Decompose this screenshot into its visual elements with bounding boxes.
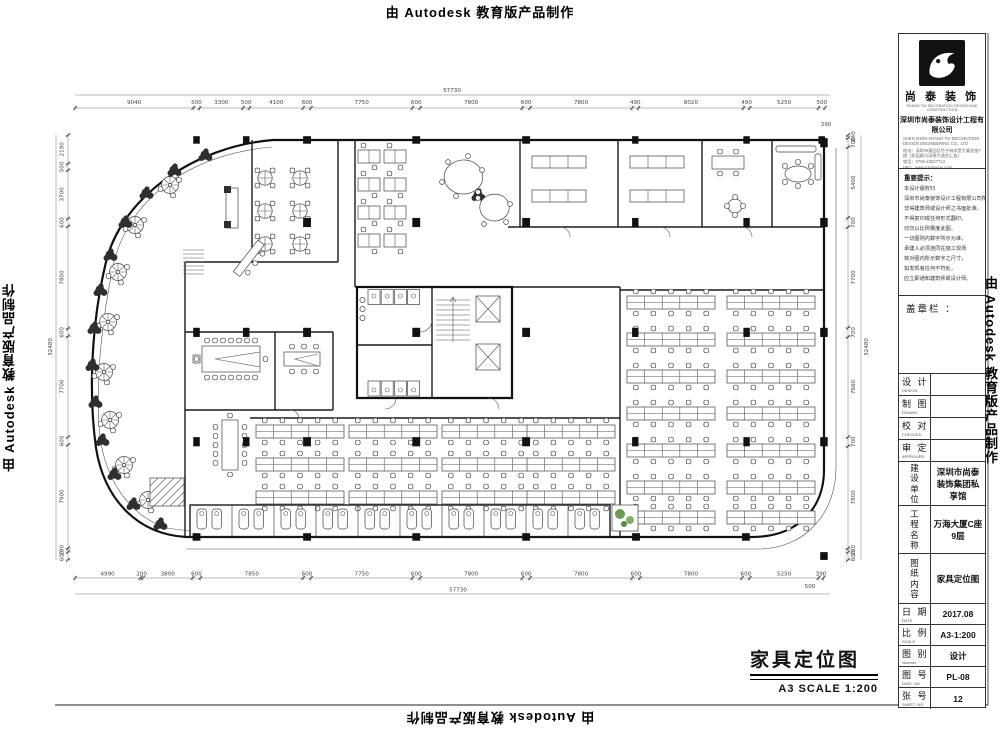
svg-text:600: 600 <box>411 100 422 106</box>
notice-section: 重要提示： 本设计版权归深圳市尚泰装饰设计工程有限公司所有，非得建筑师或设计师之… <box>899 169 985 296</box>
info-rows: 建设单位 深圳市尚泰装饰集团私享馆 工程名称 万海大厦C座9层 图纸内容 家具定… <box>899 462 985 604</box>
svg-text:7800: 7800 <box>60 270 66 285</box>
svg-text:4990: 4990 <box>101 572 116 578</box>
category-value: 设计 <box>931 646 985 666</box>
drawing-title: 家具定位图 <box>750 645 878 672</box>
info-row-project: 工程名称 万海大厦C座9层 <box>899 506 985 554</box>
company-phone: 电话：0755-23227713 <box>903 159 981 164</box>
svg-text:7900: 7900 <box>60 489 66 504</box>
svg-text:7700: 7700 <box>851 270 857 285</box>
notice-line: 一切图则内数字所示为准， <box>904 234 980 244</box>
svg-text:490: 490 <box>741 100 752 106</box>
svg-text:8020: 8020 <box>684 100 699 106</box>
workstations-bottom <box>256 418 615 511</box>
svg-text:390: 390 <box>816 572 827 578</box>
scale-value: A3-1:200 <box>931 625 985 645</box>
brand-name-en: SHANG TAI DECORATION DESIGN AND CONSTRUC… <box>899 104 985 112</box>
info-row-sheet-content: 图纸内容 家具定位图 <box>899 554 985 604</box>
svg-text:5400: 5400 <box>851 175 857 190</box>
svg-text:500: 500 <box>191 100 202 106</box>
svg-text:5250: 5250 <box>777 572 792 578</box>
svg-text:4100: 4100 <box>269 100 284 106</box>
svg-text:7750: 7750 <box>355 100 370 106</box>
drawing-scale-note: A3 SCALE 1:200 <box>750 683 878 695</box>
reception-area <box>183 186 269 280</box>
svg-text:600: 600 <box>302 572 313 578</box>
autodesk-banner-bottom: 由 Autodesk 教育版产品制作 <box>0 709 1000 728</box>
organic-tables <box>440 154 513 227</box>
svg-text:600: 600 <box>631 572 642 578</box>
sign-row-approved: 审 定APPROVER <box>899 440 985 462</box>
svg-text:600: 600 <box>191 572 202 578</box>
dwgno-value: PL-08 <box>931 667 985 687</box>
svg-text:7800: 7800 <box>851 490 857 505</box>
workstations-right <box>627 289 815 531</box>
client-value: 深圳市尚泰装饰集团私享馆 <box>931 462 985 505</box>
sign-row-drawn: 制 图DRAWN <box>899 396 985 418</box>
meta-row-category: 图 别Number 设计 <box>899 646 985 667</box>
company-address: 地址：深圳市福田区竹子林求是大厦北座7楼（彩田路与深南大道交汇处） <box>903 148 981 159</box>
sign-row-checked: 校 对CHECKED <box>899 418 985 440</box>
company-logo <box>919 40 965 86</box>
meta-row-dwgno: 图 号DWG. NO PL-08 <box>899 667 985 688</box>
content-value: 家具定位图 <box>931 554 985 603</box>
svg-text:7800: 7800 <box>464 100 479 106</box>
sign-rows: 设 计DESIGN 制 图DRAWN 校 对CHECKED 审 定APPROVE… <box>899 374 985 462</box>
svg-text:7750: 7750 <box>355 572 370 578</box>
sign-value <box>931 374 985 395</box>
top-right-offices <box>712 146 821 217</box>
svg-text:700: 700 <box>851 217 857 228</box>
svg-text:500: 500 <box>60 161 66 172</box>
svg-text:500: 500 <box>816 100 827 106</box>
svg-text:600: 600 <box>60 327 66 338</box>
svg-text:500: 500 <box>241 100 252 106</box>
svg-text:700: 700 <box>851 436 857 447</box>
svg-text:600: 600 <box>851 550 857 561</box>
title-underline <box>750 674 878 680</box>
sign-value <box>931 440 985 461</box>
core-toilets-stairs-elevators <box>290 227 752 419</box>
company-name: 深圳市尚泰装饰设计工程有限公司 <box>900 115 984 135</box>
svg-text:7800: 7800 <box>574 100 589 106</box>
stamp-section: 盖章栏 ： <box>899 296 985 374</box>
sign-value <box>931 418 985 439</box>
brand-section: 尚 泰 装 饰 SHANG TAI DECORATION DESIGN AND … <box>899 34 985 169</box>
round-table-room <box>255 168 310 254</box>
notice-line: 承建人必须连同在施工现场 <box>904 244 980 254</box>
svg-text:600: 600 <box>60 217 66 228</box>
svg-text:7660: 7660 <box>851 379 857 394</box>
drawing-title-block: 家具定位图 A3 SCALE 1:200 <box>750 645 878 695</box>
svg-text:600: 600 <box>60 550 66 561</box>
svg-text:7800: 7800 <box>574 572 589 578</box>
svg-text:700: 700 <box>851 327 857 338</box>
svg-text:2190: 2190 <box>60 142 66 157</box>
svg-text:3800: 3800 <box>161 572 176 578</box>
svg-text:7800: 7800 <box>684 572 699 578</box>
svg-text:7850: 7850 <box>245 572 260 578</box>
sign-row-design: 设 计DESIGN <box>899 374 985 396</box>
notice-line: 核对图内所示数字之尺寸， <box>904 254 980 264</box>
svg-text:5250: 5250 <box>777 100 792 106</box>
date-value: 2017.08 <box>931 604 985 624</box>
svg-text:7700: 7700 <box>60 379 66 394</box>
svg-text:32480: 32480 <box>864 338 870 356</box>
brand-name: 尚 泰 装 饰 <box>899 88 985 104</box>
meta-row-date: 日 期DATE 2017.08 <box>899 604 985 625</box>
autodesk-banner-left: 由 Autodesk 教育版产品制作 <box>0 283 19 471</box>
info-row-client: 建设单位 深圳市尚泰装饰集团私享馆 <box>899 462 985 506</box>
workstations-top <box>358 143 684 254</box>
svg-text:3700: 3700 <box>60 187 66 202</box>
svg-text:32480: 32480 <box>48 338 54 356</box>
svg-text:600: 600 <box>521 100 532 106</box>
notice-line: 不得复印或任何形式翻印。 <box>904 214 980 224</box>
notice-line: 如发现有任何不符处， <box>904 264 980 274</box>
company-name-en: SHEN ZHEN SHANG TAI DECORATION DESIGN EN… <box>903 136 981 147</box>
title-block: 尚 泰 装 饰 SHANG TAI DECORATION DESIGN AND … <box>898 33 986 708</box>
meta-row-scale: 比 例SCALE A3-1:200 <box>899 625 985 646</box>
stamp-label: 盖章栏 ： <box>906 304 957 315</box>
svg-text:57730: 57730 <box>443 88 461 94</box>
sheetno-value: 12 <box>931 688 985 709</box>
notice-line: 本设计版权归 <box>904 184 980 194</box>
svg-text:600: 600 <box>302 100 313 106</box>
svg-text:490: 490 <box>630 100 641 106</box>
walls <box>92 140 836 549</box>
meeting-rooms <box>150 338 320 506</box>
sign-value <box>931 396 985 417</box>
svg-text:57730: 57730 <box>449 588 467 594</box>
project-value: 万海大厦C座9层 <box>931 506 985 553</box>
svg-text:9040: 9040 <box>127 100 142 106</box>
notice-lines: 本设计版权归深圳市尚泰装饰设计工程有限公司所有，非得建筑师或设计师之书面批准，不… <box>904 184 980 284</box>
svg-text:500: 500 <box>805 584 816 590</box>
svg-text:600: 600 <box>521 572 532 578</box>
notice-line: 切勿以比例量度此图。 <box>904 224 980 234</box>
svg-text:390: 390 <box>821 122 832 128</box>
svg-text:700: 700 <box>851 137 857 148</box>
svg-text:600: 600 <box>60 435 66 446</box>
autodesk-banner-top: 由 Autodesk 教育版产品制作 <box>0 2 960 21</box>
swan-logo-icon <box>919 40 965 86</box>
floor-plan-svg: 9040500330050041006007750600780060078004… <box>0 0 1000 731</box>
svg-text:600: 600 <box>741 572 752 578</box>
notice-line: 非得建筑师或设计师之书面批准， <box>904 204 980 214</box>
notice-line: 深圳市尚泰装饰设计工程有限公司所有， <box>904 194 980 204</box>
svg-text:7800: 7800 <box>464 572 479 578</box>
svg-text:200: 200 <box>136 572 147 578</box>
svg-text:600: 600 <box>411 572 422 578</box>
meta-row-sheetno: 张 号SHEET. NO 12 <box>899 688 985 709</box>
notice-line: 应立即通知建筑师或设计师。 <box>904 274 980 284</box>
meta-rows: 日 期DATE 2017.08 比 例SCALE A3-1:200 图 别Num… <box>899 604 985 709</box>
svg-text:3300: 3300 <box>214 100 229 106</box>
notice-title: 重要提示： <box>904 172 980 182</box>
